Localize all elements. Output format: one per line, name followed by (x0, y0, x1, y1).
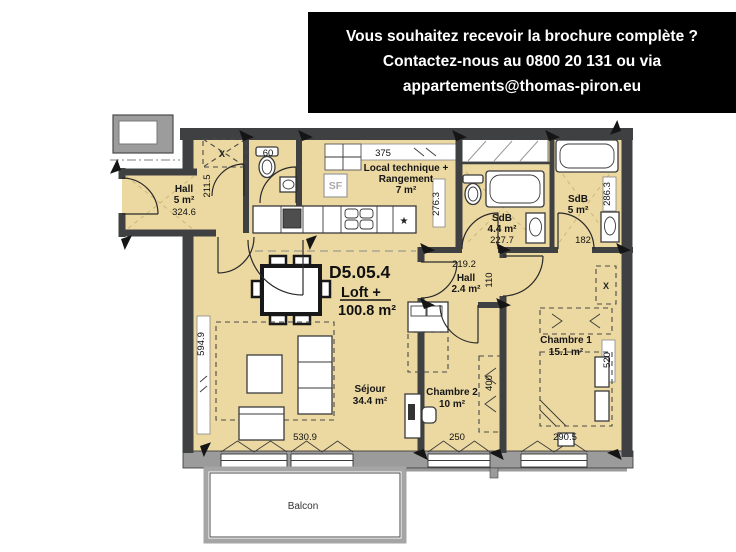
label-sdb1-area: 4.4 m² (488, 224, 518, 235)
kitchen-wall-cabinets (325, 144, 361, 170)
sofa-icon (298, 336, 332, 414)
label-sejour: Séjour (354, 384, 385, 395)
closet-x-mark: X (603, 281, 609, 291)
label-chambre1-area: 15.1 m² (549, 347, 584, 358)
label-sdb2-area: 5 m² (568, 205, 589, 216)
label-chambre2-area: 10 m² (439, 399, 466, 410)
dim-local-depth: 276.3 (431, 192, 442, 216)
label-balcon: Balcon (288, 501, 319, 512)
dim-chambre1-depth: 520 (602, 352, 613, 368)
dim-wc-width: 60 (263, 148, 274, 159)
armchair-icon (239, 407, 284, 440)
label-sdb2: SdB (568, 194, 588, 205)
dim-hall2-depth: 110 (484, 272, 495, 287)
dim-chambre2-depth: 400 (484, 375, 495, 391)
bathtub-icon (486, 171, 544, 207)
promo-banner: Vous souhaitez recevoir la brochure comp… (308, 12, 736, 113)
label-chambre1: Chambre 1 (540, 335, 592, 346)
floor-plan-image: D5.05.4 Loft + 100.8 m² Hall 5 m² Local … (0, 0, 736, 552)
dim-sdb2-width: 182 (575, 235, 591, 246)
stairwell-block (110, 115, 180, 160)
dim-kitchen-counter: 375 (375, 148, 391, 159)
coffee-table-icon (247, 355, 282, 393)
bathtub-icon (556, 140, 618, 172)
washbasin-icon (601, 212, 619, 242)
label-chambre2: Chambre 2 (426, 387, 478, 398)
dining-table-icon (252, 256, 330, 324)
promo-banner-line1: Vous souhaitez recevoir la brochure comp… (346, 28, 698, 45)
promo-banner-line2: Contactez-nous au 0800 20 131 ou via (383, 53, 662, 70)
unit-area: 100.8 m² (338, 303, 396, 319)
dim-closet-depth: 211.5 (202, 174, 213, 197)
hob-star-icon: ★ (400, 216, 409, 227)
label-local-technique-1: Local technique + (364, 163, 449, 174)
label-local-technique-2: Rangement (379, 174, 434, 185)
dim-hall-width: 324.6 (172, 207, 196, 218)
screenshot-root: D5.05.4 Loft + 100.8 m² Hall 5 m² Local … (0, 0, 736, 552)
sf-label: SF (329, 180, 343, 192)
label-hall-entry: Hall (175, 184, 194, 195)
label-hall2: Hall (457, 273, 476, 284)
dim-chambre2-width: 250 (449, 432, 465, 443)
shaft-area (462, 139, 548, 162)
washbasin-icon (526, 213, 545, 243)
label-hall2-area: 2.4 m² (452, 284, 482, 295)
label-hall-entry-area: 5 m² (174, 195, 195, 206)
washbasin-icon (280, 177, 297, 192)
dim-sdb1-width: 227.7 (490, 235, 514, 246)
dim-sejour-width: 530.9 (293, 432, 317, 443)
balcony (206, 468, 627, 541)
label-local-technique-area: 7 m² (396, 185, 417, 196)
dim-sejour-depth: 594.9 (196, 332, 207, 356)
dim-sdb2-depth: 286.3 (602, 182, 613, 206)
oven-icon (283, 209, 301, 228)
label-sejour-area: 34.4 m² (353, 396, 388, 407)
unit-type: Loft + (341, 285, 381, 301)
label-sdb1: SdB (492, 213, 512, 224)
unit-code: D5.05.4 (329, 262, 391, 282)
toilet-icon (463, 175, 483, 205)
dim-hall2-width: 219.2 (452, 259, 476, 270)
promo-banner-line3: appartements@thomas-piron.eu (403, 78, 641, 95)
dim-chambre1-width: 290.5 (553, 432, 577, 443)
closet-x-mark: X (219, 149, 225, 159)
